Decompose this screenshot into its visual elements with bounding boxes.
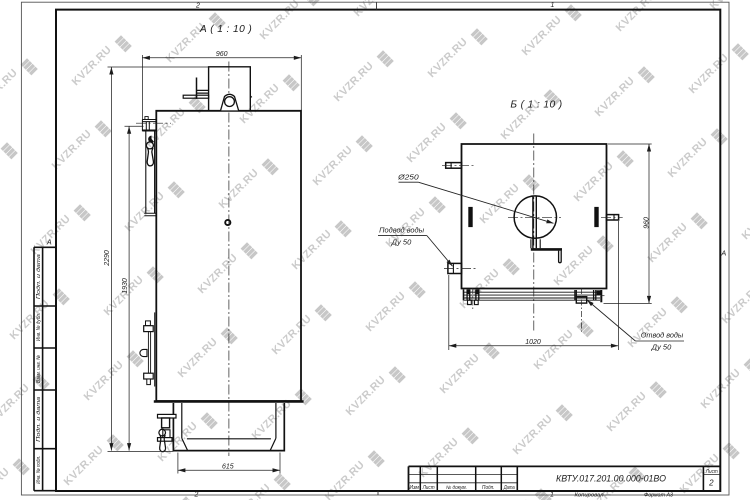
svg-text:Лист: Лист <box>705 469 718 475</box>
svg-text:960: 960 <box>216 51 228 58</box>
svg-text:Ду 50: Ду 50 <box>651 343 672 352</box>
svg-text:1930: 1930 <box>122 278 129 294</box>
svg-text:Инв. № подл.: Инв. № подл. <box>36 456 42 484</box>
svg-text:1020: 1020 <box>525 339 541 346</box>
svg-text:А: А <box>720 249 726 258</box>
svg-text:Лист: Лист <box>422 485 435 491</box>
svg-text:Подп. и дата: Подп. и дата <box>36 254 42 299</box>
svg-text:2: 2 <box>194 492 199 499</box>
svg-text:№ докум.: № докум. <box>446 485 467 491</box>
svg-text:1: 1 <box>550 492 554 499</box>
svg-text:2290: 2290 <box>104 250 111 267</box>
svg-text:Подп.: Подп. <box>482 485 495 491</box>
svg-text:Отвод воды: Отвод воды <box>641 331 684 340</box>
svg-text:Копировал: Копировал <box>575 492 604 498</box>
svg-text:2: 2 <box>708 479 714 488</box>
svg-text:А: А <box>46 238 52 247</box>
svg-text:Дата: Дата <box>503 485 515 491</box>
svg-text:Б ( 1 : 10 ): Б ( 1 : 10 ) <box>510 100 562 111</box>
svg-text:2: 2 <box>195 2 200 9</box>
svg-text:Взам. инв. №: Взам. инв. № <box>36 355 42 383</box>
svg-text:Изм: Изм <box>409 485 419 491</box>
svg-text:615: 615 <box>222 464 234 471</box>
svg-text:КВТУ.017.201.00.000-01ВО: КВТУ.017.201.00.000-01ВО <box>556 473 666 483</box>
svg-text:Подп. и дата: Подп. и дата <box>36 397 42 442</box>
svg-text:Инв. № дубл.: Инв. № дубл. <box>36 313 42 341</box>
svg-text:Формат А3: Формат А3 <box>644 492 673 498</box>
svg-text:960: 960 <box>644 217 651 229</box>
svg-text:А ( 1 : 10 ): А ( 1 : 10 ) <box>199 24 252 35</box>
svg-text:Подвод воды: Подвод воды <box>379 226 425 235</box>
svg-text:Ø250: Ø250 <box>397 173 420 182</box>
svg-text:Ду 50: Ду 50 <box>391 237 412 246</box>
svg-text:1: 1 <box>551 2 555 9</box>
